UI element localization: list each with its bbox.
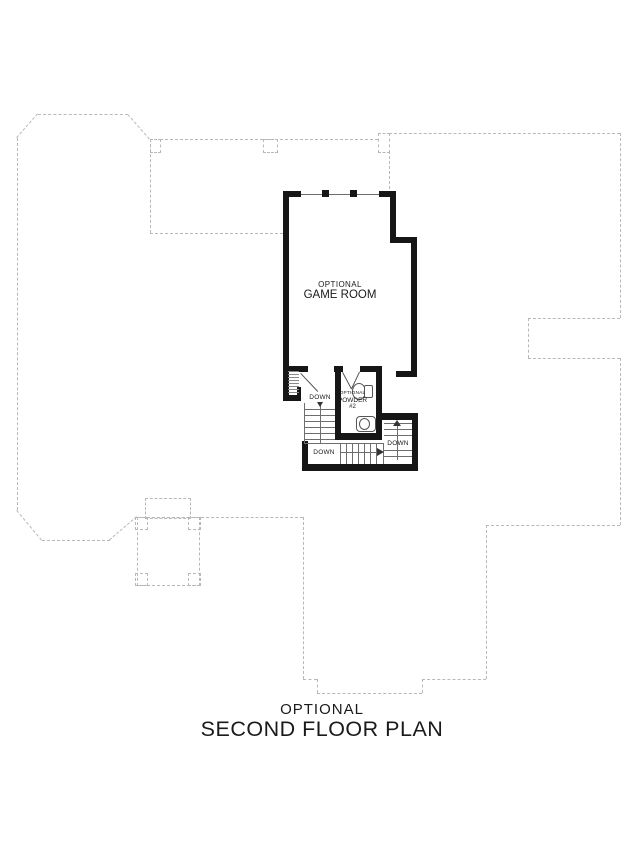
first-floor-outline-chamfer	[16, 510, 42, 541]
game-room-label: OPTIONAL GAME ROOM	[283, 280, 397, 301]
first-floor-outline-segment	[38, 114, 128, 115]
wall-stair-top-right	[382, 413, 418, 420]
first-floor-outline-segment	[486, 525, 620, 526]
porch-outline-segment	[317, 693, 422, 694]
porch-post	[135, 517, 148, 530]
stair-tread	[346, 444, 347, 464]
game-room-label-optional: OPTIONAL	[283, 280, 397, 289]
porch-post	[135, 573, 148, 586]
stair-down-label-center: DOWN	[304, 394, 336, 401]
stair-tread	[358, 444, 359, 464]
first-floor-outline-segment	[17, 138, 18, 510]
powder-door-leaf	[342, 372, 352, 389]
window-mullion	[322, 190, 329, 197]
plan-title: OPTIONAL SECOND FLOOR PLAN	[2, 701, 640, 741]
powder-room-label: OPTIONAL POWDER #2	[334, 391, 371, 411]
game-room-label-name: GAME ROOM	[283, 289, 397, 301]
stair-tread	[384, 429, 412, 430]
porch-post	[188, 517, 201, 530]
closet-door-leaf	[300, 373, 318, 392]
first-floor-outline-segment	[422, 679, 486, 680]
first-floor-outline-segment	[422, 679, 423, 693]
first-floor-outline-chamfer	[16, 113, 38, 138]
stair-tread	[370, 444, 371, 464]
first-floor-outline-segment	[150, 139, 151, 233]
window-mullion	[350, 190, 357, 197]
first-floor-outline-segment	[303, 679, 317, 680]
stair-arrow-head	[377, 448, 384, 456]
wall-powder-bottom	[335, 433, 382, 440]
plan-title-prefix: OPTIONAL	[2, 701, 640, 718]
first-floor-outline-segment	[150, 233, 283, 234]
first-floor-outline-chamfer	[109, 516, 137, 540]
wall-stair-bottom	[302, 464, 418, 471]
wall-stair-right	[412, 413, 418, 471]
sink-bowl	[359, 418, 370, 430]
first-floor-outline-segment	[42, 540, 110, 541]
first-floor-outline-segment	[528, 318, 529, 358]
first-floor-outline-segment	[389, 151, 390, 189]
porch-bay-outline	[145, 498, 191, 519]
stair-direction-line	[341, 452, 378, 453]
chimney-outline	[263, 139, 278, 153]
first-floor-outline-segment	[317, 679, 318, 693]
stair-tread	[384, 435, 412, 436]
first-floor-outline-segment	[389, 133, 620, 134]
wall-powder-right	[376, 366, 382, 440]
first-floor-outline-segment	[486, 525, 487, 679]
stair-arrow-head	[393, 420, 401, 426]
stair-tread	[384, 450, 412, 451]
stair-tread	[364, 444, 365, 464]
window-line	[301, 194, 379, 195]
first-floor-outline-segment	[620, 133, 621, 318]
stair-direction-line	[320, 405, 321, 443]
porch-post	[188, 573, 201, 586]
powder-label-number: #2	[334, 404, 371, 411]
stair-down-label-right: DOWN	[384, 440, 412, 447]
powder-label-name: POWDER	[334, 397, 371, 404]
wall-game-room-bottom-right	[396, 371, 417, 377]
closet-hatch	[288, 371, 299, 395]
stair-boundary	[340, 443, 341, 464]
stair-tread	[384, 456, 412, 457]
first-floor-outline-segment	[303, 517, 304, 679]
first-floor-outline-segment	[620, 358, 621, 525]
floor-plan-canvas: OPTIONAL GAME ROOM DOWN OPTIONAL POWDER …	[0, 0, 640, 853]
first-floor-outline-segment	[528, 318, 620, 319]
wall-game-room-right-lower	[411, 237, 417, 377]
stair-tread	[352, 444, 353, 464]
wall-game-room-right-upper	[390, 191, 396, 243]
first-floor-outline-notch	[150, 139, 161, 153]
stair-arrow-tail	[317, 402, 323, 407]
plan-title-name: SECOND FLOOR PLAN	[2, 718, 640, 741]
chimney-outline	[378, 133, 390, 153]
stair-landing-line	[304, 443, 383, 444]
first-floor-outline-segment	[528, 358, 620, 359]
first-floor-outline-chamfer	[127, 114, 150, 139]
stair-down-label-bottom: DOWN	[308, 449, 340, 456]
